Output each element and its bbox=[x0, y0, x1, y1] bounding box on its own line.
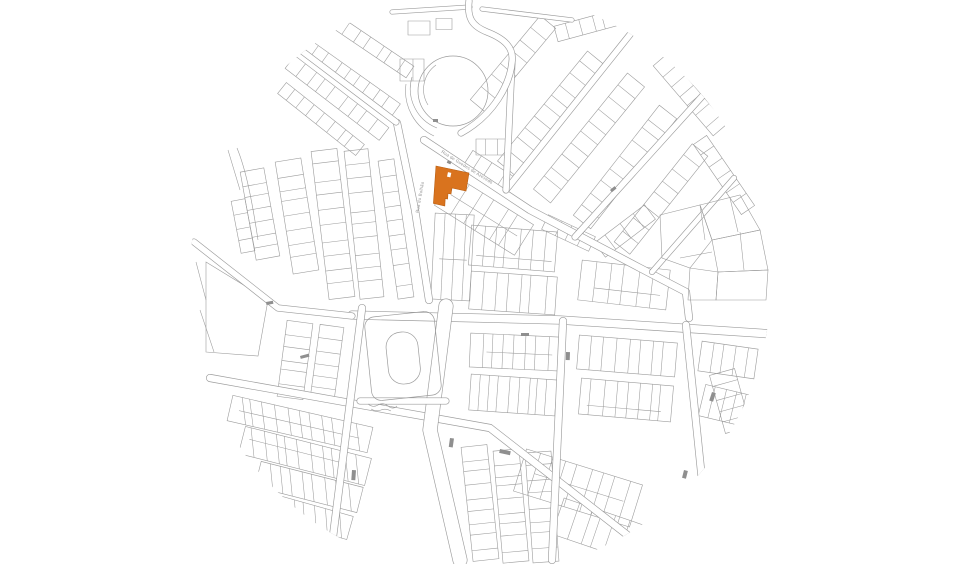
map-linework bbox=[251, 428, 254, 458]
map-linework bbox=[495, 273, 498, 311]
map-linework bbox=[451, 214, 455, 300]
map-linework bbox=[353, 31, 361, 43]
map-linework bbox=[592, 16, 596, 31]
map-linework bbox=[716, 394, 741, 401]
map-linework bbox=[396, 284, 412, 286]
map-linework bbox=[298, 48, 396, 122]
map-linework bbox=[528, 491, 554, 493]
map-linework bbox=[567, 503, 579, 539]
map-linework bbox=[491, 334, 493, 368]
map-linework bbox=[237, 227, 251, 230]
building-mark bbox=[682, 470, 688, 479]
building-mark bbox=[351, 470, 356, 480]
map-linework bbox=[296, 439, 299, 469]
map-linework bbox=[303, 502, 305, 527]
map-linework bbox=[284, 436, 287, 466]
map-linework bbox=[528, 275, 531, 313]
map-linework bbox=[614, 10, 618, 25]
map-linework bbox=[486, 352, 552, 355]
map-linework bbox=[633, 525, 645, 561]
map-linework bbox=[636, 267, 641, 307]
map-linework bbox=[242, 397, 245, 424]
map-linework bbox=[288, 408, 291, 435]
map-linework bbox=[730, 198, 738, 232]
map-linework bbox=[290, 253, 316, 257]
map-linework bbox=[284, 212, 310, 216]
map-linework bbox=[592, 262, 597, 302]
map-linework bbox=[194, 242, 352, 316]
map-linework bbox=[316, 192, 342, 195]
map-linework bbox=[642, 127, 659, 141]
map-linework bbox=[524, 336, 526, 370]
map-linework bbox=[497, 497, 523, 499]
map-linework bbox=[363, 37, 371, 49]
map-linework bbox=[352, 222, 376, 225]
map-stage: Rua de Guedes de Azevedo Rua do Bolhão bbox=[0, 0, 960, 564]
map-linework bbox=[517, 377, 520, 413]
map-linework bbox=[686, 325, 709, 548]
map-linework bbox=[294, 500, 296, 525]
map-linework bbox=[247, 206, 271, 210]
map-linework bbox=[579, 20, 583, 35]
map-linework bbox=[380, 175, 396, 177]
map-linework bbox=[531, 27, 546, 40]
map-linework bbox=[662, 181, 678, 193]
map-linework bbox=[270, 464, 273, 492]
map-linework bbox=[494, 464, 520, 466]
map-linework bbox=[325, 509, 327, 534]
map-linework bbox=[436, 19, 452, 30]
map-linework bbox=[252, 233, 276, 237]
map-linework bbox=[463, 459, 489, 462]
map-linework bbox=[626, 382, 629, 418]
map-linework bbox=[243, 183, 267, 187]
map-linework bbox=[296, 97, 305, 108]
map-linework bbox=[589, 121, 606, 135]
map-linework bbox=[441, 214, 445, 300]
map-linework bbox=[349, 191, 373, 194]
map-linework bbox=[327, 281, 353, 284]
map-linework bbox=[744, 348, 748, 378]
map-linework bbox=[348, 104, 358, 117]
map-linework bbox=[439, 259, 467, 260]
map-linework bbox=[651, 341, 654, 375]
map-linework bbox=[330, 308, 362, 560]
map-linework bbox=[313, 161, 339, 164]
map-linework bbox=[706, 116, 720, 128]
map-linework bbox=[608, 97, 625, 111]
building-mark bbox=[566, 352, 570, 360]
map-linework bbox=[318, 207, 344, 210]
map-linework bbox=[496, 484, 522, 486]
map-linework bbox=[372, 90, 381, 102]
parcel-polygon bbox=[688, 268, 718, 300]
map-linework bbox=[196, 262, 206, 300]
map-linework bbox=[684, 155, 700, 167]
map-linework bbox=[381, 96, 390, 108]
map-linework bbox=[469, 522, 495, 525]
map-linework bbox=[261, 402, 264, 429]
map-linework bbox=[264, 431, 267, 461]
map-linework bbox=[239, 238, 253, 241]
map-linework bbox=[638, 340, 641, 374]
map-linework bbox=[314, 506, 316, 531]
map-linework bbox=[250, 219, 274, 223]
map-linework bbox=[476, 139, 508, 155]
map-linework bbox=[733, 193, 746, 202]
map-linework bbox=[478, 375, 481, 411]
map-linework bbox=[482, 9, 572, 20]
map-linework bbox=[601, 14, 605, 29]
map-linework bbox=[614, 338, 617, 372]
map-linework bbox=[494, 227, 497, 267]
map-linework bbox=[601, 337, 604, 371]
map-linework bbox=[385, 205, 401, 207]
map-linework bbox=[520, 40, 535, 53]
map-linework bbox=[469, 374, 558, 416]
map-linework bbox=[544, 379, 547, 415]
map-linework bbox=[658, 385, 661, 421]
map-linework bbox=[406, 84, 434, 136]
map-linework bbox=[476, 255, 551, 261]
map-linework bbox=[525, 128, 542, 142]
map-linework bbox=[671, 75, 685, 87]
map-linework bbox=[353, 236, 377, 239]
map-linework bbox=[528, 378, 531, 414]
map-linework bbox=[357, 266, 381, 269]
map-linework bbox=[344, 149, 384, 300]
map-linework bbox=[588, 379, 591, 415]
building-mark bbox=[300, 354, 309, 359]
map-linework bbox=[231, 199, 255, 254]
map-linework bbox=[470, 532, 496, 535]
map-linework bbox=[461, 445, 499, 562]
map-linework bbox=[234, 213, 248, 216]
map-linework bbox=[306, 105, 315, 116]
map-linework bbox=[654, 192, 670, 204]
map-linework bbox=[310, 443, 313, 473]
parcel-polygon bbox=[700, 195, 760, 240]
map-linework bbox=[351, 210, 375, 213]
map-linework bbox=[607, 264, 612, 304]
map-linework bbox=[316, 113, 325, 124]
building-mark bbox=[433, 119, 438, 122]
map-linework bbox=[468, 509, 494, 512]
map-linework bbox=[543, 231, 546, 271]
map-linework bbox=[710, 343, 714, 373]
map-linework bbox=[289, 242, 315, 246]
map-linework bbox=[331, 418, 334, 445]
map-linework bbox=[281, 496, 283, 521]
map-linework bbox=[527, 479, 553, 481]
map-linework bbox=[661, 342, 664, 376]
map-linework bbox=[313, 375, 337, 378]
map-linework bbox=[317, 351, 341, 354]
map-linework bbox=[310, 324, 344, 401]
map-linework bbox=[562, 154, 579, 168]
map-linework bbox=[503, 228, 506, 268]
map-linework bbox=[318, 337, 342, 340]
map-linework bbox=[239, 411, 359, 438]
map-linework bbox=[286, 227, 312, 231]
map-linework bbox=[462, 215, 466, 301]
map-linework bbox=[598, 109, 615, 123]
map-linework bbox=[719, 389, 726, 420]
map-linework bbox=[276, 434, 279, 464]
map-linework bbox=[506, 274, 509, 312]
map-linework bbox=[237, 148, 258, 240]
map-linework bbox=[280, 466, 283, 494]
map-linework bbox=[544, 176, 561, 190]
map-linework bbox=[356, 454, 359, 484]
map-linework bbox=[620, 223, 631, 237]
building-mark bbox=[521, 333, 529, 336]
map-linework bbox=[337, 130, 346, 141]
map-linework bbox=[393, 263, 409, 265]
map-linework bbox=[355, 253, 379, 256]
map-linework bbox=[285, 335, 311, 338]
map-linework bbox=[571, 143, 588, 157]
map-linework bbox=[467, 497, 493, 500]
map-linework bbox=[517, 137, 534, 151]
map-linework bbox=[254, 244, 278, 248]
map-linework bbox=[358, 279, 382, 282]
map-linework bbox=[534, 116, 551, 130]
map-linework bbox=[408, 21, 430, 35]
map-linework bbox=[544, 104, 561, 118]
building-mark bbox=[449, 438, 454, 447]
map-linework bbox=[451, 195, 517, 236]
map-linework bbox=[307, 72, 317, 85]
map-linework bbox=[717, 170, 730, 179]
parcel-polygon bbox=[716, 270, 768, 300]
map-linework bbox=[633, 213, 644, 227]
location-map: Rua de Guedes de Azevedo Rua do Bolhão bbox=[0, 0, 960, 564]
map-linework bbox=[325, 87, 335, 100]
map-linework bbox=[356, 424, 359, 451]
map-linework bbox=[368, 119, 378, 132]
map-linework bbox=[551, 167, 568, 181]
map-linework bbox=[498, 215, 517, 246]
map-linework bbox=[698, 384, 755, 427]
map-linework bbox=[637, 383, 640, 419]
map-linework bbox=[620, 265, 625, 305]
map-linework bbox=[548, 337, 550, 371]
map-linework bbox=[464, 469, 490, 472]
map-linework bbox=[740, 232, 744, 270]
map-linework bbox=[278, 174, 304, 178]
map-linework bbox=[519, 275, 522, 313]
map-linework bbox=[338, 96, 348, 109]
map-linework bbox=[680, 252, 712, 258]
map-linework bbox=[580, 61, 597, 75]
map-linework bbox=[346, 163, 370, 166]
map-linework bbox=[701, 146, 714, 155]
building-mark bbox=[709, 392, 716, 402]
map-linework bbox=[326, 268, 352, 271]
map-linework bbox=[290, 469, 293, 497]
map-linework bbox=[397, 60, 405, 72]
map-linework bbox=[713, 380, 738, 387]
map-linework bbox=[482, 334, 484, 368]
map-linework bbox=[296, 64, 306, 77]
highlighted-parcel-shape[interactable] bbox=[433, 166, 469, 206]
map-linework bbox=[720, 344, 724, 374]
map-linework bbox=[430, 306, 460, 560]
map-linework bbox=[680, 85, 694, 97]
map-linework bbox=[496, 376, 499, 412]
map-linework bbox=[324, 253, 350, 256]
map-linework bbox=[250, 399, 253, 426]
map-linework bbox=[652, 178, 734, 272]
map-linework bbox=[286, 89, 295, 100]
highlighted-parcel[interactable] bbox=[433, 166, 469, 206]
map-linework bbox=[282, 360, 308, 363]
map-linework bbox=[315, 364, 339, 367]
map-linework bbox=[602, 380, 605, 416]
map-linework bbox=[672, 169, 688, 181]
map-linework bbox=[502, 550, 528, 552]
map-linework bbox=[545, 276, 548, 314]
map-linework bbox=[280, 188, 306, 192]
map-linework bbox=[342, 23, 350, 35]
map-linework bbox=[383, 191, 399, 193]
map-linework bbox=[581, 508, 593, 544]
map-linework bbox=[650, 384, 653, 420]
map-linework bbox=[468, 225, 557, 272]
map-linework bbox=[315, 79, 325, 92]
map-linework bbox=[309, 413, 312, 440]
map-linework bbox=[281, 369, 307, 372]
map-linework bbox=[332, 16, 414, 78]
map-linework bbox=[282, 197, 308, 201]
map-linework bbox=[587, 405, 661, 411]
map-linework bbox=[331, 448, 334, 478]
plaza-inner-ring bbox=[385, 330, 422, 385]
map-linework bbox=[482, 272, 485, 310]
map-linework bbox=[322, 240, 348, 243]
map-linework bbox=[493, 449, 529, 563]
map-linework bbox=[320, 222, 346, 225]
map-linework bbox=[534, 336, 536, 370]
map-linework bbox=[322, 446, 325, 476]
map-linework bbox=[391, 248, 407, 250]
map-linework bbox=[325, 478, 328, 506]
map-linework bbox=[513, 335, 515, 369]
map-linework bbox=[299, 410, 302, 437]
map-linework bbox=[482, 226, 485, 266]
map-linework bbox=[302, 472, 305, 500]
map-linework bbox=[284, 346, 310, 349]
map-linework bbox=[245, 193, 269, 197]
map-linework bbox=[472, 548, 498, 551]
map-linework bbox=[312, 387, 336, 390]
map-linework bbox=[465, 483, 491, 486]
map-linework bbox=[535, 379, 538, 415]
map-linework bbox=[347, 176, 371, 179]
map-linework bbox=[327, 121, 336, 132]
map-linework bbox=[530, 230, 533, 270]
map-linework bbox=[344, 135, 353, 146]
map-linework bbox=[739, 394, 746, 425]
map-linework bbox=[648, 120, 665, 134]
map-linework bbox=[698, 341, 758, 379]
map-linework bbox=[581, 131, 598, 145]
map-linework bbox=[501, 534, 527, 536]
map-linework bbox=[594, 288, 660, 295]
map-linework bbox=[274, 405, 277, 432]
map-linework bbox=[315, 180, 341, 183]
map-linework bbox=[500, 522, 526, 524]
map-linework bbox=[240, 168, 280, 260]
map-linework bbox=[722, 415, 747, 422]
map-linework bbox=[311, 474, 314, 502]
map-linework bbox=[384, 51, 392, 63]
map-linework bbox=[502, 335, 504, 369]
map-linework bbox=[663, 65, 677, 77]
map-linework bbox=[279, 384, 305, 387]
landmarks bbox=[237, 56, 768, 480]
map-linework bbox=[392, 7, 470, 12]
map-linework bbox=[589, 336, 592, 370]
map-linework bbox=[618, 85, 635, 99]
map-linework bbox=[387, 219, 403, 221]
map-linework bbox=[340, 513, 342, 538]
map-linework bbox=[653, 54, 727, 136]
map-linework bbox=[389, 234, 405, 236]
map-linework bbox=[487, 375, 490, 411]
map-linework bbox=[239, 426, 372, 485]
map-linework bbox=[357, 111, 367, 124]
parcel-polygon bbox=[712, 230, 768, 272]
map-linework bbox=[709, 158, 722, 167]
map-linework bbox=[228, 150, 240, 190]
map-linework bbox=[464, 193, 483, 224]
map-linework bbox=[632, 140, 649, 154]
map-linework bbox=[200, 310, 214, 352]
map-linework bbox=[570, 73, 587, 87]
map-linework bbox=[481, 87, 496, 100]
map-linework bbox=[302, 40, 401, 116]
map-linework bbox=[615, 381, 618, 417]
map-linework bbox=[565, 23, 569, 38]
map-linework bbox=[499, 512, 525, 514]
map-linework bbox=[424, 65, 436, 105]
map-linework bbox=[628, 339, 631, 373]
map-linework bbox=[349, 484, 352, 512]
map-linework bbox=[551, 95, 568, 109]
map-linework bbox=[285, 56, 389, 141]
map-linework bbox=[508, 377, 511, 413]
map-linework bbox=[376, 46, 384, 58]
map-linework bbox=[560, 85, 577, 99]
map-linework bbox=[322, 416, 325, 443]
